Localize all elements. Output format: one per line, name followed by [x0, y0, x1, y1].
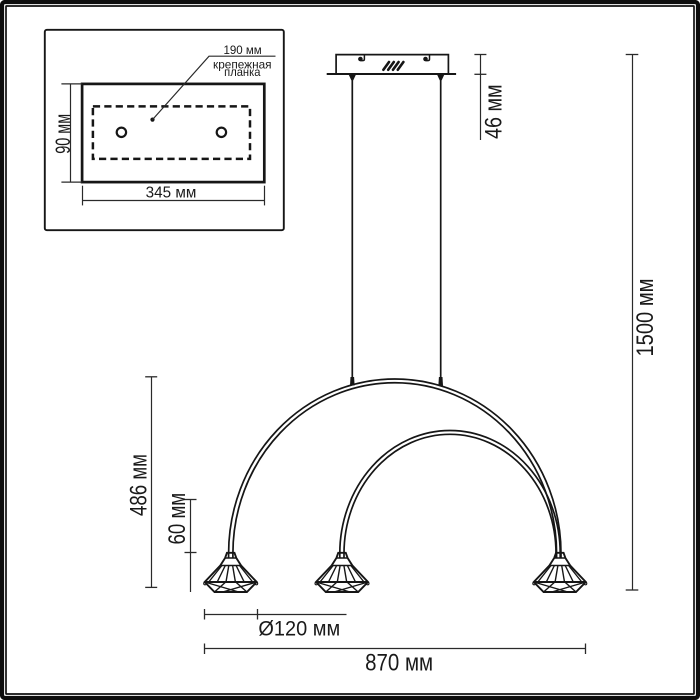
svg-text:1500 мм: 1500 мм [632, 279, 659, 357]
svg-text:Ø120 мм: Ø120 мм [258, 617, 340, 640]
svg-text:345 мм: 345 мм [146, 185, 197, 202]
svg-text:870 мм: 870 мм [365, 650, 433, 677]
svg-text:планка: планка [224, 65, 261, 79]
svg-text:60 мм: 60 мм [164, 493, 191, 545]
svg-text:486 мм: 486 мм [126, 454, 153, 516]
svg-text:190 мм: 190 мм [223, 43, 261, 57]
svg-text:90 мм: 90 мм [52, 114, 75, 154]
svg-text:46 мм: 46 мм [481, 84, 508, 139]
